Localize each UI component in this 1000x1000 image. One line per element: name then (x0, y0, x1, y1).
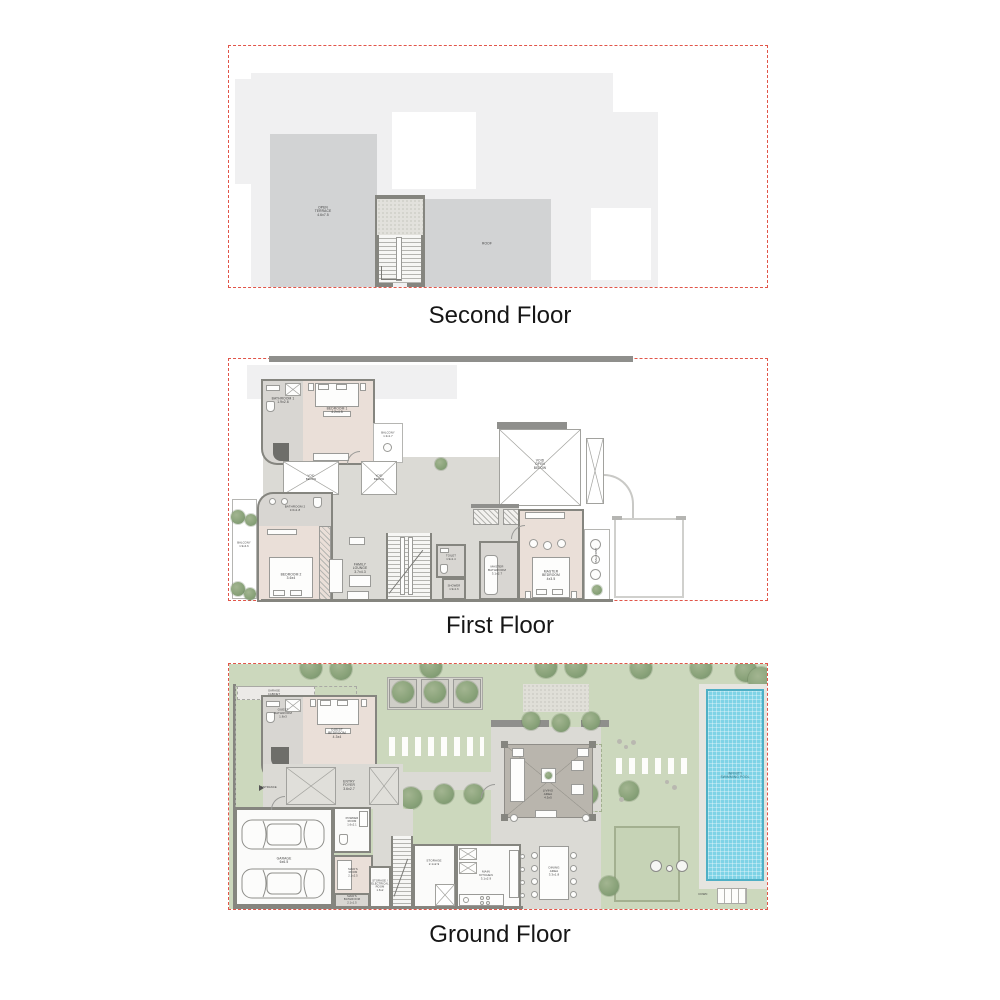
void-marker (361, 461, 397, 495)
toilet-icon (339, 834, 348, 845)
shower-icon (285, 699, 301, 712)
chair-icon (543, 541, 552, 550)
bed-icon (337, 860, 352, 890)
curved-wall (604, 474, 634, 519)
tree-icon (456, 681, 478, 703)
chair-icon (570, 878, 577, 885)
terrace (614, 518, 684, 598)
planter (510, 814, 518, 822)
void-marker (283, 461, 339, 495)
car-icon (239, 817, 327, 853)
lounge-chair-icon (650, 860, 662, 872)
sink-icon (269, 498, 276, 505)
chair-icon (512, 748, 524, 757)
room-storage-electrical (369, 866, 391, 909)
pergola-post (589, 741, 596, 748)
sink-icon (463, 897, 469, 903)
pillow-icon (552, 589, 563, 595)
tree-icon (231, 510, 245, 524)
chair-icon (571, 760, 584, 771)
table-icon (591, 555, 600, 564)
dresser-icon (267, 529, 297, 535)
wall (423, 195, 425, 288)
open-terrace-area (270, 134, 377, 288)
tv-cabinet-icon (349, 537, 365, 545)
pillow-icon (320, 700, 331, 706)
room-shower (442, 578, 466, 600)
dining-table-icon (539, 846, 569, 900)
sink-icon (266, 701, 280, 707)
wall (233, 906, 523, 910)
first-floor-plan: BATHROOM 1 1.9x2.6 BEDROOM 1 4.2x4.5 BAL… (228, 358, 768, 601)
sink-icon (440, 548, 449, 553)
toilet-icon (266, 712, 275, 723)
toilet-icon (313, 497, 322, 508)
wall (471, 504, 519, 508)
wall (407, 283, 425, 288)
chair-icon (531, 891, 538, 898)
sofa-icon (510, 758, 525, 802)
tree-icon (552, 714, 570, 732)
shaft (273, 443, 289, 461)
chair-icon (570, 891, 577, 898)
chair-icon (590, 539, 601, 550)
plant-icon (545, 772, 552, 779)
lounge-chair-icon (676, 860, 688, 872)
pergola-post (501, 814, 508, 821)
wall (261, 599, 613, 602)
chair-icon (531, 852, 538, 859)
toilet-icon (266, 401, 275, 412)
stool-icon (520, 880, 525, 885)
side-table-icon (666, 865, 673, 872)
stair-landing (377, 199, 423, 235)
nightstand-icon (525, 591, 531, 599)
table-icon (383, 443, 392, 452)
tree-icon (424, 681, 446, 703)
shaft (435, 884, 455, 906)
rock-icon (665, 780, 669, 784)
chair-icon (531, 878, 538, 885)
tree-icon (522, 712, 540, 730)
stair-arrow-icon (381, 279, 401, 280)
appliance-icon (459, 848, 477, 860)
appliance-icon (459, 862, 477, 874)
chair-icon (529, 539, 538, 548)
stool-icon (520, 867, 525, 872)
tree-icon (244, 588, 256, 600)
nightstand-icon (361, 699, 367, 707)
second-floor-caption: Second Floor (0, 302, 1000, 330)
chair-icon (571, 784, 584, 795)
footprint-shape (235, 79, 251, 184)
bench-icon (323, 411, 351, 417)
stair-stringer (400, 537, 405, 595)
ceiling-panel (286, 767, 336, 805)
pillow-icon (336, 384, 347, 390)
tree-icon (434, 784, 454, 804)
nightstand-icon (308, 383, 314, 391)
rock-icon (631, 740, 636, 745)
wall (676, 516, 686, 520)
car-icon (239, 866, 327, 902)
garden-steps (717, 888, 747, 904)
chair-icon (531, 865, 538, 872)
tree-icon (582, 712, 600, 730)
wall (491, 720, 549, 727)
bench-icon (535, 810, 557, 818)
stair-stringer (396, 237, 402, 281)
tree-icon (435, 458, 447, 470)
ground-floor-plan: GARAGE CABINET GUEST BATHROOM 1.8x3 GUES… (228, 663, 768, 910)
first-floor-caption: First Floor (0, 612, 1000, 640)
gravel-patch (523, 684, 589, 712)
burner-icon (486, 896, 490, 900)
rock-icon (624, 745, 628, 749)
wall (612, 516, 622, 520)
burner-icon (480, 901, 484, 905)
tree-icon (245, 514, 257, 526)
kitchen-island (509, 850, 519, 898)
chair-icon (577, 748, 589, 757)
bench-icon (325, 728, 351, 734)
toilet-icon (440, 564, 448, 574)
coffee-table-icon (349, 575, 371, 587)
roof-area (423, 199, 551, 288)
rock-icon (617, 739, 622, 744)
footprint-shape (477, 112, 658, 199)
burner-icon (486, 901, 490, 905)
stool-icon (520, 854, 525, 859)
stepping-stones (616, 758, 689, 774)
footprint-notch (591, 208, 651, 280)
ceiling-panel (369, 767, 399, 805)
burner-icon (480, 896, 484, 900)
swimming-pool (706, 689, 764, 881)
tree-icon (599, 876, 619, 896)
pillow-icon (318, 384, 329, 390)
sink-icon (359, 811, 368, 827)
nightstand-icon (310, 699, 316, 707)
plant-icon (592, 585, 602, 595)
chair-icon (557, 539, 566, 548)
nightstand-icon (360, 383, 366, 391)
void-marker (586, 438, 604, 504)
chair-icon (570, 865, 577, 872)
tree-icon (392, 681, 414, 703)
shower-icon (285, 383, 301, 396)
footprint-notch (392, 112, 476, 189)
trellis-slats (389, 737, 484, 756)
planter (582, 814, 590, 822)
tree-icon (231, 582, 245, 596)
rock-icon (619, 797, 624, 802)
bathtub-icon (484, 555, 498, 595)
chair-icon (570, 852, 577, 859)
pergola-post (589, 814, 596, 821)
tree-icon (400, 787, 422, 809)
planter (614, 826, 680, 902)
wall (497, 422, 567, 429)
pillow-icon (536, 589, 547, 595)
dresser-icon (525, 512, 565, 519)
void-open-below (499, 429, 581, 506)
pillow-icon (290, 590, 302, 596)
pillow-icon (273, 590, 285, 596)
ground-floor-caption: Ground Floor (0, 921, 1000, 949)
closet (473, 509, 499, 525)
sink-icon (281, 498, 288, 505)
roof-edge-bar (269, 356, 633, 362)
rock-icon (672, 785, 677, 790)
dresser-icon (313, 453, 349, 461)
stool-icon (520, 893, 525, 898)
entrance-arrow-icon (259, 785, 264, 791)
wall (375, 283, 393, 288)
stair-arrow-icon (381, 266, 382, 280)
pillow-icon (337, 700, 348, 706)
second-floor-plan: OPEN TERRACE 4.6x7.5 ROOF (228, 45, 768, 288)
sofa-icon (329, 559, 343, 593)
pergola-post (501, 741, 508, 748)
sink-icon (266, 385, 280, 391)
nightstand-icon (571, 591, 577, 599)
chair-icon (590, 569, 601, 580)
